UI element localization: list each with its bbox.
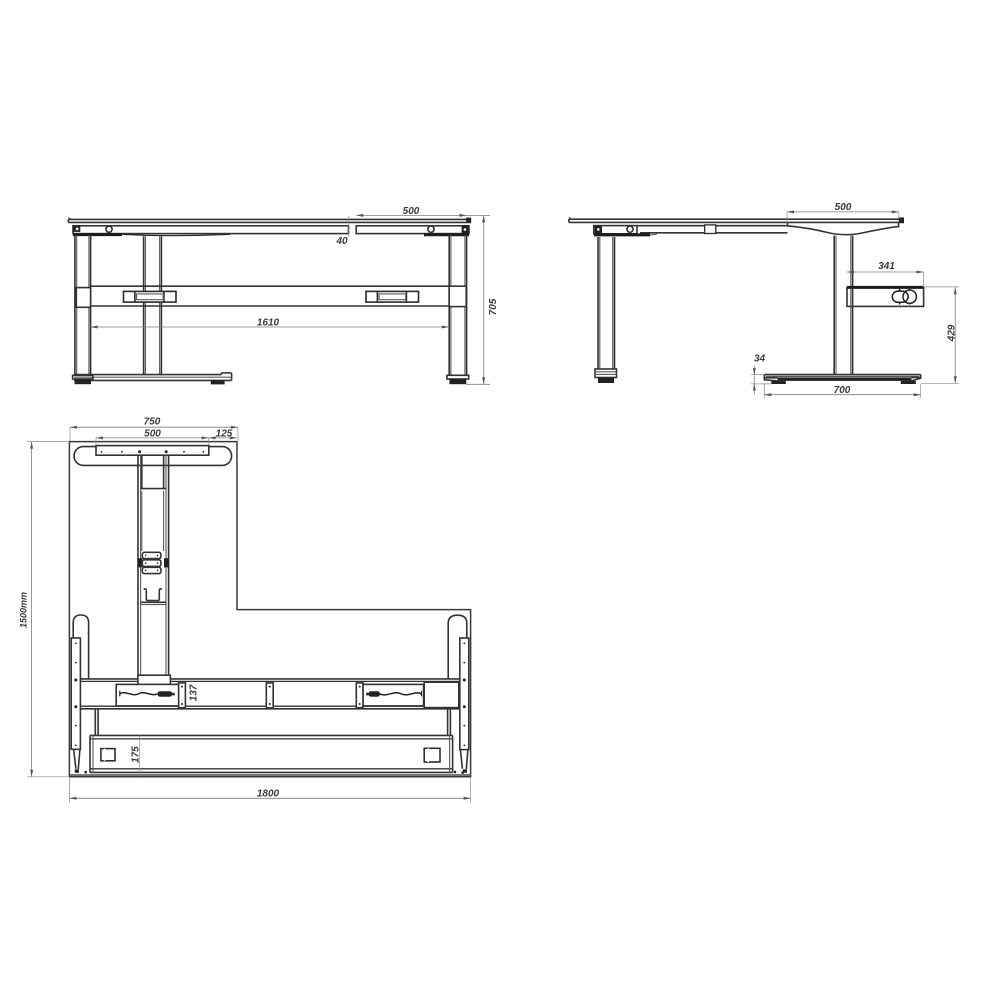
svg-text:429: 429 [946,324,957,342]
svg-text:137: 137 [189,684,200,701]
svg-text:341: 341 [878,261,895,272]
svg-text:34: 34 [754,354,766,365]
svg-text:175: 175 [130,746,141,763]
svg-text:1500mm: 1500mm [19,592,29,628]
svg-text:1800: 1800 [257,789,280,800]
svg-text:750: 750 [144,417,161,428]
svg-text:125: 125 [216,429,233,440]
svg-text:40: 40 [335,236,348,247]
svg-text:700: 700 [834,385,851,396]
svg-text:500: 500 [144,429,161,440]
svg-text:500: 500 [835,202,852,213]
svg-text:705: 705 [488,298,499,315]
svg-text:1610: 1610 [257,318,280,329]
svg-text:500: 500 [403,206,420,217]
